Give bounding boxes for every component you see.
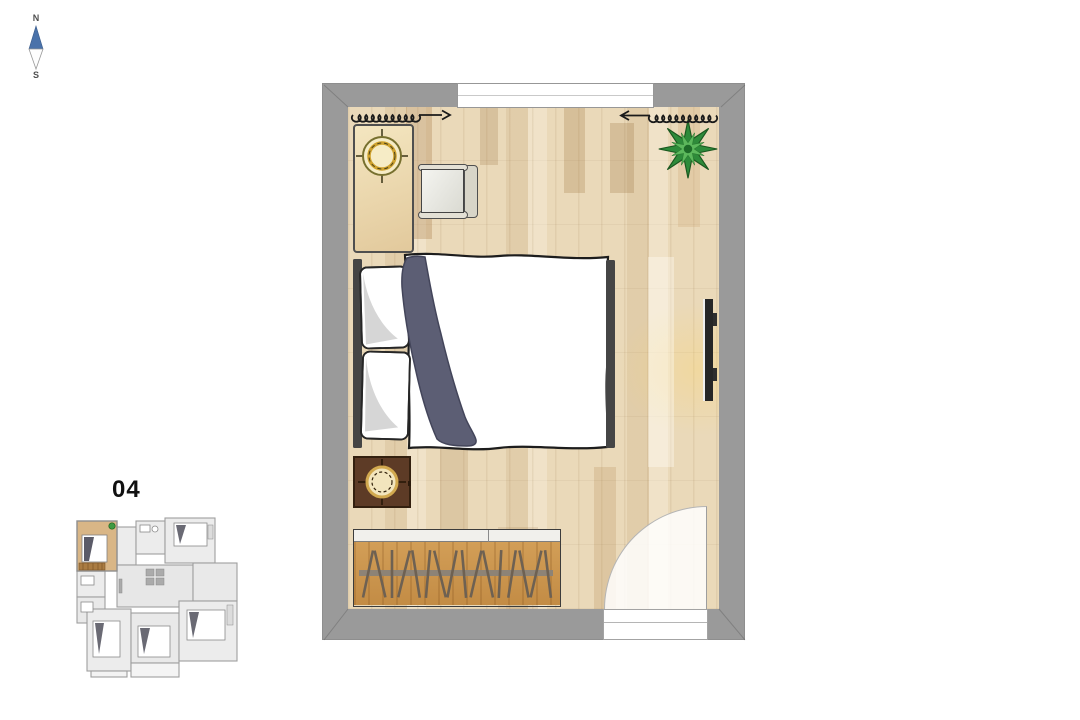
compass-icon: N S (24, 12, 48, 78)
curtain-rail-right (621, 111, 717, 122)
compass-needle-south (29, 49, 43, 69)
overview-plant (109, 523, 115, 529)
compass-south-label: S (33, 70, 39, 78)
overview-highlight-room (77, 521, 117, 571)
overview-hall (117, 527, 136, 565)
curtain-rail-left (352, 111, 450, 122)
unit-number-label: 04 (112, 476, 141, 504)
overview-balcony-2 (91, 671, 127, 677)
unit-overview-plan (75, 517, 240, 679)
floorplan-canvas: N S 04 (0, 0, 1080, 720)
plan-overlay (323, 84, 746, 641)
compass-needle-north (29, 26, 43, 49)
compass-north-label: N (33, 13, 40, 23)
bedroom-floorplan (322, 83, 745, 640)
overview-balcony (131, 663, 179, 677)
overview-corridor (193, 563, 237, 601)
